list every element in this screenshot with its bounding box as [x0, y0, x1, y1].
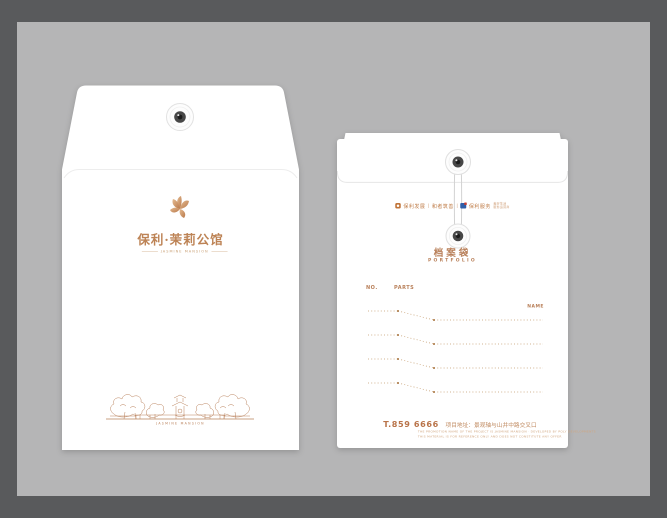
- logo-tagline: JASMINE MANSION: [139, 248, 222, 255]
- front-envelope-mockup: 保利·茉莉公馆 JASMINE MANSION JASMINE MANSION: [62, 85, 299, 450]
- disclaimer-line-1: THE PROMOTION NAME OF THE PROJECT IS JAS…: [418, 430, 487, 433]
- brand-item-stacked: 美好生活 服务运营商: [493, 203, 509, 210]
- envelope-body: [337, 139, 568, 448]
- disclaimer-line-2: THIS MATERIAL IS FOR REFERENCE ONLY AND …: [418, 435, 487, 438]
- logo-title: 保利·茉莉公馆: [62, 229, 299, 248]
- brand-item: 保利发展: [403, 202, 425, 210]
- project-address: 项目地址：景观轴与山井中路交叉口: [446, 422, 537, 429]
- doc-label-chinese: 档案袋: [337, 245, 568, 259]
- form-column-no: NO.: [366, 285, 378, 291]
- phone-number: T.859 6666: [383, 420, 439, 430]
- poly-logo-icon: [395, 203, 401, 209]
- back-envelope-mockup: 保利发展 | 和者筑善 | 保利服务 美好生活 服务运营商 档案袋 PORTFO…: [337, 133, 568, 448]
- form-column-parts: PARTS: [394, 285, 414, 291]
- brand-item: 和者筑善: [432, 202, 454, 210]
- brand-item: 保利服务: [469, 202, 491, 210]
- front-envelope-shape: [62, 85, 299, 450]
- back-envelope-shape: [337, 133, 568, 448]
- doc-label-english: PORTFOLIO: [401, 258, 505, 263]
- form-column-name: NAME: [527, 304, 544, 309]
- eyelet-button-top-icon: [446, 150, 471, 175]
- eyelet-button-icon: [167, 104, 194, 131]
- brand-logos-row: 保利发展 | 和者筑善 | 保利服务 美好生活 服务运营商: [395, 202, 511, 210]
- contact-line: T.859 6666 项目地址：景观轴与山井中路交叉口: [383, 418, 522, 429]
- illustration-caption: JASMINE MANSION: [143, 422, 219, 426]
- service-logo-icon: [460, 203, 466, 209]
